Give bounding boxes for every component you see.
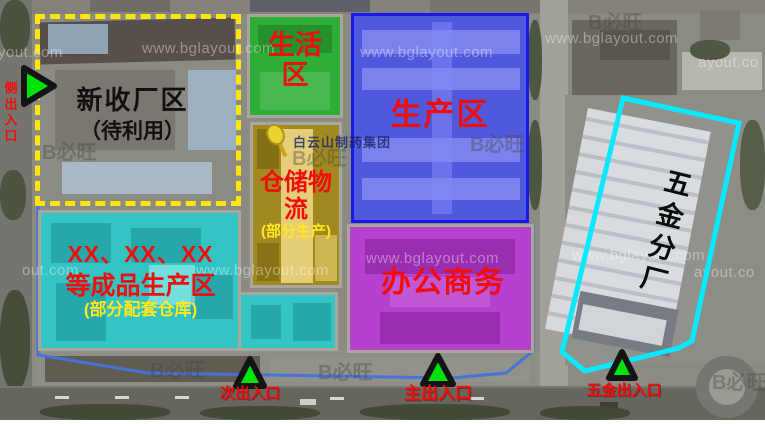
main-entrance-label: 主出入口: [396, 384, 480, 403]
trees: [740, 120, 765, 210]
zone-texture: [293, 303, 331, 341]
watermark-url: ayout.co: [698, 54, 759, 71]
road-right: [540, 0, 568, 392]
watermark-url: www.bglayout.com: [366, 250, 499, 267]
zone-texture: [380, 312, 500, 344]
trees-row: [540, 406, 630, 420]
trees-row: [40, 404, 170, 420]
zone-finished-products-annex: [238, 292, 338, 351]
zone-note-finished: (部分配套仓库): [48, 300, 233, 319]
watermark-logo: B必旺: [588, 6, 642, 35]
zone-label-living: 生活区: [263, 30, 327, 90]
trees: [528, 20, 542, 100]
building-block: [250, 0, 370, 12]
watermark-url: www.bglayout.com: [572, 247, 705, 264]
service-road: [270, 358, 530, 382]
zone-label-new-factory: 新收厂区: [65, 86, 200, 115]
zone-label-office: 办公商务: [368, 266, 518, 300]
building-block: [90, 0, 170, 12]
secondary-entrance-label: 次出入口: [214, 386, 286, 403]
page-margin: [0, 420, 765, 424]
watermark-logo: B必旺: [712, 366, 765, 395]
side-entrance-label: 侧出入口: [2, 54, 17, 172]
zone-label-warehouse: 仓储物流: [255, 170, 337, 224]
trees: [528, 120, 542, 210]
vehicle: [300, 399, 316, 405]
poi-label: 白云山制药集团: [293, 132, 391, 151]
lane-mark: [115, 396, 129, 399]
zone-status-new-factory: （待利用）: [65, 120, 200, 144]
trees-row: [200, 406, 320, 420]
trees: [0, 290, 30, 390]
zone-label-finished-line1: XX、XX、XX: [48, 242, 233, 268]
trees-row: [360, 404, 510, 420]
watermark-url: ayout.co: [694, 264, 755, 281]
watermark-url: www.bglayout.com: [360, 44, 493, 61]
trees: [0, 170, 26, 220]
lane-mark: [55, 396, 69, 399]
lane-mark: [330, 397, 344, 400]
watermark-url: www.bglayout.com: [142, 40, 275, 57]
building-block: [430, 0, 550, 13]
zone-label-finished-line2: 等成品生产区: [48, 272, 233, 300]
zone-texture: [251, 305, 281, 339]
site-plan-map: 生活区 生产区 仓储物流 (部分生产) XX、XX、XX 等成品生产区 (部分配…: [0, 0, 765, 424]
building-block: [700, 10, 740, 40]
hardware-entrance-label: 五金出入口: [584, 383, 664, 400]
zone-label-production: 生产区: [384, 98, 496, 133]
watermark-logo: B必旺: [150, 354, 204, 383]
zone-note-warehouse: (部分生产): [246, 224, 346, 241]
watermark-logo: B必旺: [318, 356, 372, 385]
lane-mark: [175, 396, 189, 399]
zone-texture: [257, 129, 279, 169]
